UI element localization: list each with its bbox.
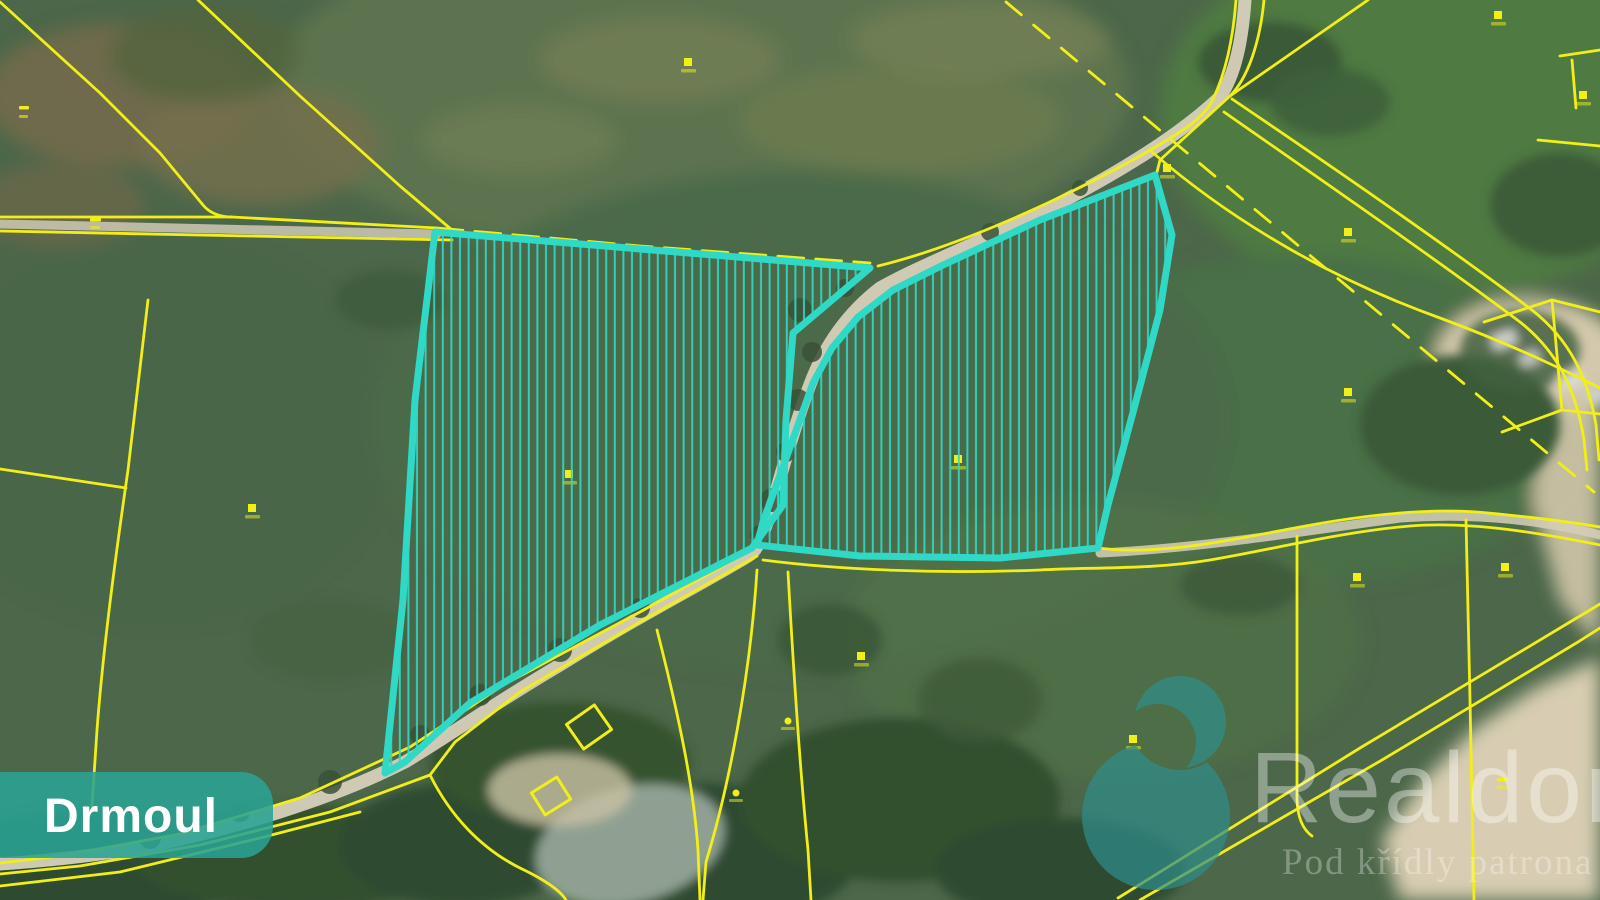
brand-watermark-text: Realdomus: [1250, 732, 1600, 844]
municipality-label-text: Drmoul: [44, 790, 218, 843]
aerial-map-view: Drmoul Realdomus Pod křídly patrona real…: [0, 0, 1600, 900]
brand-watermark: Realdomus Pod křídly patrona realit: [1250, 732, 1600, 883]
municipality-label: Drmoul: [0, 772, 273, 858]
cadastral-map-svg: Drmoul Realdomus Pod křídly patrona real…: [0, 0, 1600, 900]
brand-watermark-tagline: Pod křídly patrona realit: [1282, 842, 1600, 883]
